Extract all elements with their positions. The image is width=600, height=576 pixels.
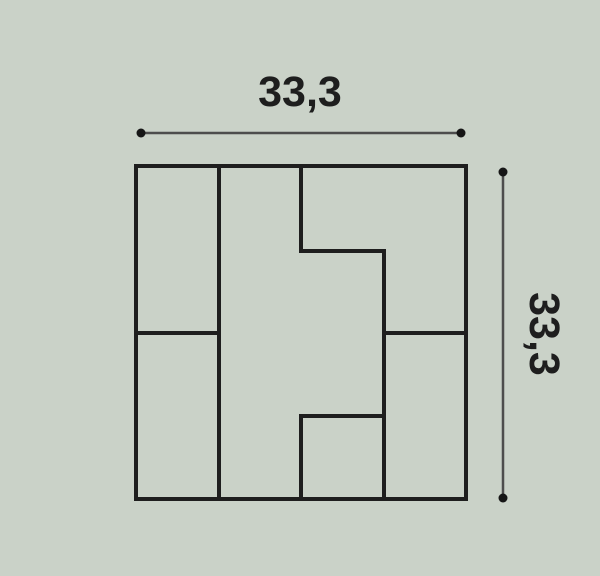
height-dimension-bottom-endpoint-dot <box>499 494 508 503</box>
height-dimension-top-endpoint-dot <box>499 168 508 177</box>
width-dimension-label: 33,3 <box>220 70 380 114</box>
width-dimension-left-endpoint-dot <box>137 129 146 138</box>
diagram-canvas: 33,3 33,3 <box>0 0 600 576</box>
width-dimension-right-endpoint-dot <box>457 129 466 138</box>
height-dimension-label: 33,3 <box>522 254 566 414</box>
